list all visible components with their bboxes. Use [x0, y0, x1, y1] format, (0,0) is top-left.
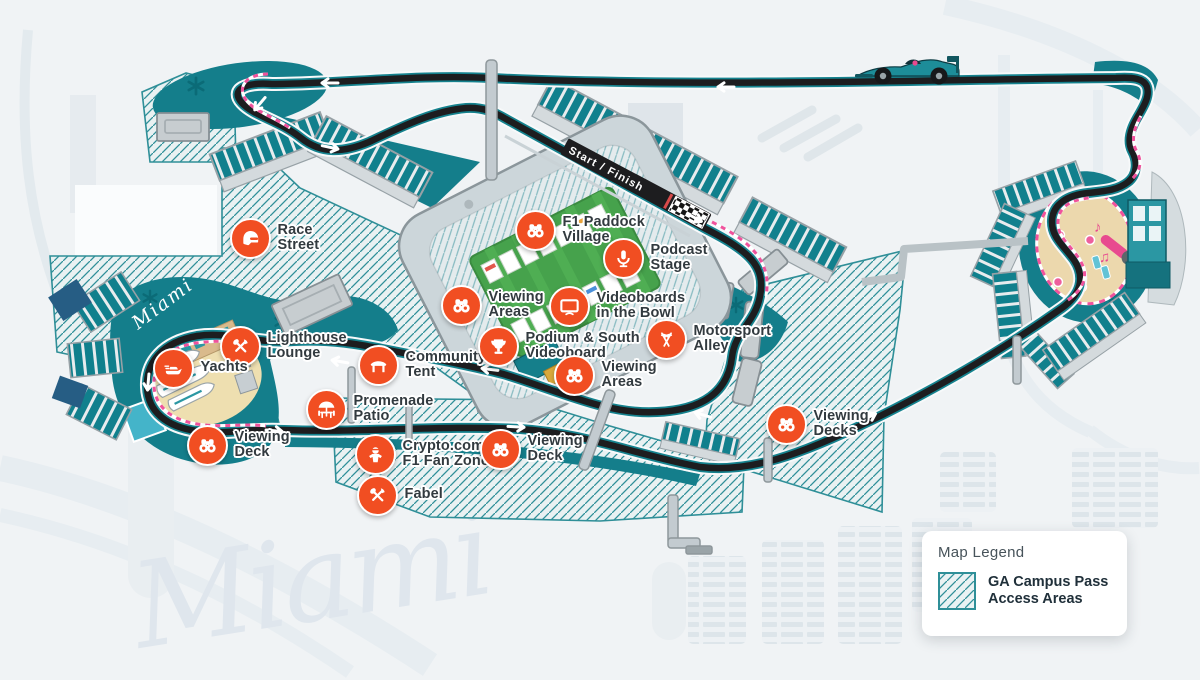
- videoboard-icon: [558, 295, 581, 318]
- poi-badge: [187, 425, 228, 466]
- utensils-icon: [366, 484, 389, 507]
- poi-badge: [603, 238, 644, 279]
- poi-label: Viewing Areas: [489, 290, 544, 321]
- binoculars-icon: [450, 294, 473, 317]
- poi-badge: [306, 389, 347, 430]
- legend-item: GA Campus Pass Access Areas: [938, 572, 1111, 610]
- helmet-icon: [239, 227, 262, 250]
- poi-badge: [358, 345, 399, 386]
- fan-icon: [364, 443, 387, 466]
- poi-label: Promenade Patio: [354, 394, 434, 425]
- binoculars-icon: [524, 219, 547, 242]
- poi-viewing-decks-east[interactable]: Viewing Decks: [766, 404, 869, 445]
- poi-badge: [478, 326, 519, 367]
- microphone-icon: [612, 247, 635, 270]
- music-note: ♪: [1094, 219, 1102, 236]
- patio-icon: [315, 398, 338, 421]
- poi-label: Fabel: [405, 487, 443, 503]
- poi-motorsport-alley[interactable]: Motorsport Alley: [646, 319, 772, 360]
- legend-title: Map Legend: [938, 544, 1111, 561]
- miami-gp-campus-map: Miami: [0, 0, 1200, 680]
- flags-icon: [655, 328, 678, 351]
- poi-viewing-deck-marina[interactable]: Viewing Deck: [187, 425, 290, 466]
- poi-race-street[interactable]: Race Street: [230, 218, 320, 259]
- stage-building: [1126, 200, 1170, 288]
- poi-label: Podcast Stage: [651, 243, 708, 274]
- poi-badge: [441, 285, 482, 326]
- poi-crypto-f1-fan-zone[interactable]: Crypto.com F1 Fan Zone: [355, 434, 490, 475]
- poi-label: Yachts: [201, 360, 248, 376]
- poi-badge: [515, 210, 556, 251]
- trophy-icon: [487, 335, 510, 358]
- poi-label: Viewing Deck: [528, 434, 583, 465]
- poi-badge: [153, 348, 194, 389]
- poi-badge: [766, 404, 807, 445]
- binoculars-icon: [489, 438, 512, 461]
- poi-community-tent[interactable]: Community Tent: [358, 345, 487, 386]
- poi-label: Viewing Decks: [814, 409, 869, 440]
- poi-label: Motorsport Alley: [694, 324, 772, 355]
- poi-viewing-areas-west[interactable]: Viewing Areas: [441, 285, 544, 326]
- binoculars-icon: [775, 413, 798, 436]
- music-note: ♫: [1099, 249, 1110, 266]
- binoculars-icon: [196, 434, 219, 457]
- poi-label: Community Tent: [406, 350, 487, 381]
- poi-badge: [355, 434, 396, 475]
- poi-label: Race Street: [278, 223, 320, 254]
- yacht-icon: [162, 357, 185, 380]
- poi-viewing-areas-south[interactable]: Viewing Areas: [554, 355, 657, 396]
- poi-label: Viewing Areas: [602, 360, 657, 391]
- poi-podcast-stage[interactable]: Podcast Stage: [603, 238, 708, 279]
- binoculars-icon: [563, 364, 586, 387]
- poi-badge: [480, 429, 521, 470]
- poi-badge: [549, 286, 590, 327]
- poi-badge: [646, 319, 687, 360]
- poi-viewing-deck-south[interactable]: Viewing Deck: [480, 429, 583, 470]
- poi-badge: [554, 355, 595, 396]
- tent-icon: [367, 354, 390, 377]
- poi-label: Lighthouse Lounge: [268, 331, 347, 362]
- poi-label: Crypto.com F1 Fan Zone: [403, 439, 490, 470]
- poi-label: Videoboards in the Bowl: [597, 291, 686, 322]
- poi-badge: [230, 218, 271, 259]
- poi-promenade-patio[interactable]: Promenade Patio: [306, 389, 434, 430]
- ga-hatch-swatch: [938, 572, 976, 610]
- poi-fabel[interactable]: Fabel: [357, 475, 443, 516]
- map-legend: Map Legend GA Campus Pass Access Areas: [922, 531, 1127, 636]
- legend-item-label: GA Campus Pass Access Areas: [988, 574, 1108, 607]
- poi-yachts[interactable]: Yachts: [153, 348, 248, 389]
- poi-badge: [357, 475, 398, 516]
- poi-label: Viewing Deck: [235, 430, 290, 461]
